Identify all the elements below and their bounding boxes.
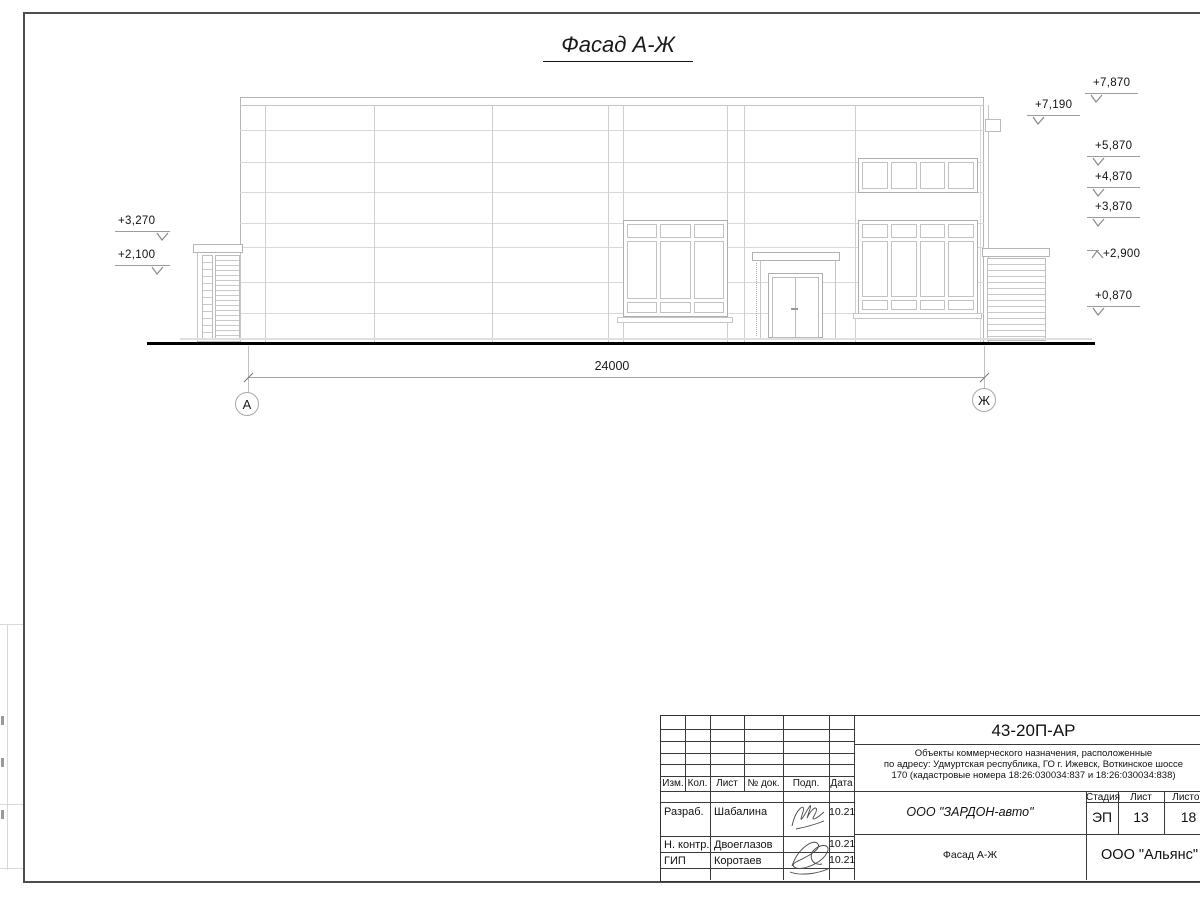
tb-role: ГИП: [664, 855, 686, 867]
elevation-arrow-icon: [1032, 116, 1045, 125]
window-pane: [920, 224, 946, 238]
window-pane: [948, 300, 974, 310]
axis-bubble-a: А: [235, 392, 259, 416]
window-pane: [948, 241, 974, 297]
parapet-cap-line: [240, 105, 984, 106]
left-wing-cap: [193, 244, 243, 253]
entrance-canopy: [752, 252, 840, 261]
left-wing-ladder: [202, 255, 213, 340]
drawing-sheet: Фасад А-Ж: [0, 0, 1200, 900]
window-middle: [623, 220, 728, 317]
window-pane: [862, 224, 888, 238]
side-stamp-line: [0, 868, 23, 869]
tb-sheets-value: 18: [1164, 809, 1200, 825]
signature-icon: [784, 832, 832, 880]
pilaster-line: [855, 105, 856, 343]
joint-line: [980, 105, 981, 343]
elevation-label: +2,100: [118, 249, 155, 261]
axis-label: А: [243, 397, 252, 412]
frame-left: [23, 12, 25, 883]
window-pane: [891, 300, 917, 310]
elevation-label: +3,870: [1095, 201, 1132, 213]
dimension-line: [248, 377, 984, 378]
window-pane: [627, 224, 657, 238]
title-block: Изм. Кол. Лист № док. Подп. Дата Разраб.…: [660, 715, 1200, 882]
elevation-label: +3,270: [118, 215, 155, 227]
door-handle: [791, 308, 798, 310]
page-title: Фасад А-Ж: [543, 32, 693, 62]
window-pane: [948, 162, 974, 189]
window-pane: [660, 241, 690, 299]
left-wing-louvers: [215, 255, 240, 340]
elevation-mark: +0,870: [1095, 290, 1132, 302]
ground-line: [147, 342, 1095, 345]
elevation-arrow-icon: [1092, 188, 1105, 197]
joint-line: [374, 105, 375, 343]
tb-col-kol: Кол.: [685, 778, 710, 789]
right-wing-cap: [982, 248, 1050, 257]
tb-col-izm: Изм.: [661, 778, 685, 789]
elevation-arrow-icon: [151, 266, 164, 275]
elevation-mark: +7,190: [1035, 99, 1072, 111]
tb-sheet-value: 13: [1118, 809, 1164, 825]
elevation-mark: +5,870: [1095, 140, 1132, 152]
signature-icon: [786, 796, 828, 836]
window-sill: [617, 317, 733, 323]
pilaster-line: [608, 105, 609, 343]
window-pane: [694, 241, 724, 299]
fastener-strip: [756, 263, 758, 336]
window-pane: [694, 302, 724, 313]
elevation-mark: +7,870: [1093, 77, 1130, 89]
side-stamp-mark: [1, 758, 4, 767]
window-pane: [694, 224, 724, 238]
side-stamp-line: [0, 804, 23, 805]
tb-role: Н. контр.: [664, 839, 709, 851]
elevation-arrow-icon: [156, 232, 169, 241]
window-pane: [627, 241, 657, 299]
right-wing-louvers: [987, 258, 1046, 341]
elevation-mark: +3,870: [1095, 201, 1132, 213]
tb-doc-code: 43-20П-АР: [854, 721, 1200, 741]
window-pane: [862, 241, 888, 297]
window-pane: [660, 302, 690, 313]
extension-line: [248, 346, 249, 392]
tb-line: [661, 764, 854, 765]
canopy-post: [835, 261, 836, 340]
elevation-arrow-icon: [1090, 94, 1103, 103]
side-stamp-mark: [1, 716, 4, 725]
canopy-post: [760, 261, 761, 340]
tb-contractor: ООО "Альянс": [1086, 847, 1200, 863]
tb-name: Коротаев: [714, 855, 762, 867]
window-pane: [920, 300, 946, 310]
frame-top: [23, 12, 1200, 14]
tb-name: Двоеглазов: [714, 839, 772, 851]
dimension-label: 24000: [582, 359, 642, 373]
elevation-mark: +3,270: [118, 215, 155, 227]
window-pane: [920, 241, 946, 297]
tb-role: Разраб.: [664, 806, 704, 818]
tb-line: [661, 729, 854, 730]
elevation-label: +7,190: [1035, 99, 1072, 111]
tb-date: 10.21: [829, 838, 854, 850]
tb-line: [661, 741, 854, 742]
elevation-arrow-icon: [1091, 250, 1104, 259]
tb-col-doc: № док.: [744, 778, 783, 789]
tb-stage-value: ЭП: [1086, 809, 1118, 825]
base-line: [180, 338, 1092, 340]
elevation-mark: +2,900: [1090, 248, 1140, 260]
tb-description-1: Объекты коммерческого назначения, распол…: [854, 748, 1200, 759]
window-sill: [853, 313, 982, 319]
tb-organization: ООО "ЗАРДОН-авто": [854, 805, 1086, 819]
window-pane: [891, 241, 917, 297]
roof-vent: [985, 119, 1001, 132]
joint-line: [492, 105, 493, 343]
axis-label: Ж: [978, 393, 990, 408]
window-pane: [862, 162, 888, 189]
tb-description-2: по адресу: Удмуртская республика, ГО г. …: [854, 759, 1200, 770]
elevation-label: +2,900: [1103, 248, 1140, 260]
tb-sheets-label: Листов: [1164, 792, 1200, 803]
window-pane: [891, 162, 917, 189]
window-pane: [660, 224, 690, 238]
tb-line: [854, 834, 1200, 835]
tb-col-data: Дата: [829, 778, 854, 789]
tb-col-podp: Подп.: [783, 778, 829, 789]
window-pane: [862, 300, 888, 310]
axis-bubble-zh: Ж: [972, 388, 996, 412]
tb-line: [661, 776, 854, 777]
tb-date: 10.21: [829, 806, 854, 818]
window-upper-right: [858, 158, 978, 193]
joint-line: [240, 130, 984, 131]
window-pane: [627, 302, 657, 313]
elevation-label: +5,870: [1095, 140, 1132, 152]
elevation-label: +0,870: [1095, 290, 1132, 302]
elevation-label: +7,870: [1093, 77, 1130, 89]
elevation-label: +4,870: [1095, 171, 1132, 183]
elevation-arrow-icon: [1092, 307, 1105, 316]
window-pane: [948, 224, 974, 238]
side-stamp-line: [7, 624, 8, 870]
elevation-arrow-icon: [1092, 157, 1105, 166]
window-pane: [920, 162, 946, 189]
tb-date: 10.21: [829, 854, 854, 866]
elevation-mark: +4,870: [1095, 171, 1132, 183]
pilaster-line: [744, 105, 745, 343]
tb-col-list: Лист: [710, 778, 744, 789]
elevation-mark: +2,100: [118, 249, 155, 261]
tb-name: Шабалина: [714, 806, 767, 818]
elevation-arrow-icon: [1092, 218, 1105, 227]
tb-line: [854, 744, 1200, 745]
side-stamp-mark: [1, 810, 4, 819]
tb-description-3: 170 (кадастровые номера 18:26:030034:837…: [854, 770, 1200, 781]
tb-stage-label: Стадия: [1086, 792, 1118, 803]
window-lower-right: [858, 220, 978, 314]
tb-line: [661, 753, 854, 754]
tb-drawing-name: Фасад А-Ж: [854, 849, 1086, 861]
joint-line: [265, 105, 266, 343]
extension-line: [984, 346, 985, 392]
side-stamp-line: [0, 624, 23, 625]
window-pane: [891, 224, 917, 238]
tb-line: [1086, 791, 1087, 880]
tb-sheet-label: Лист: [1118, 792, 1164, 803]
